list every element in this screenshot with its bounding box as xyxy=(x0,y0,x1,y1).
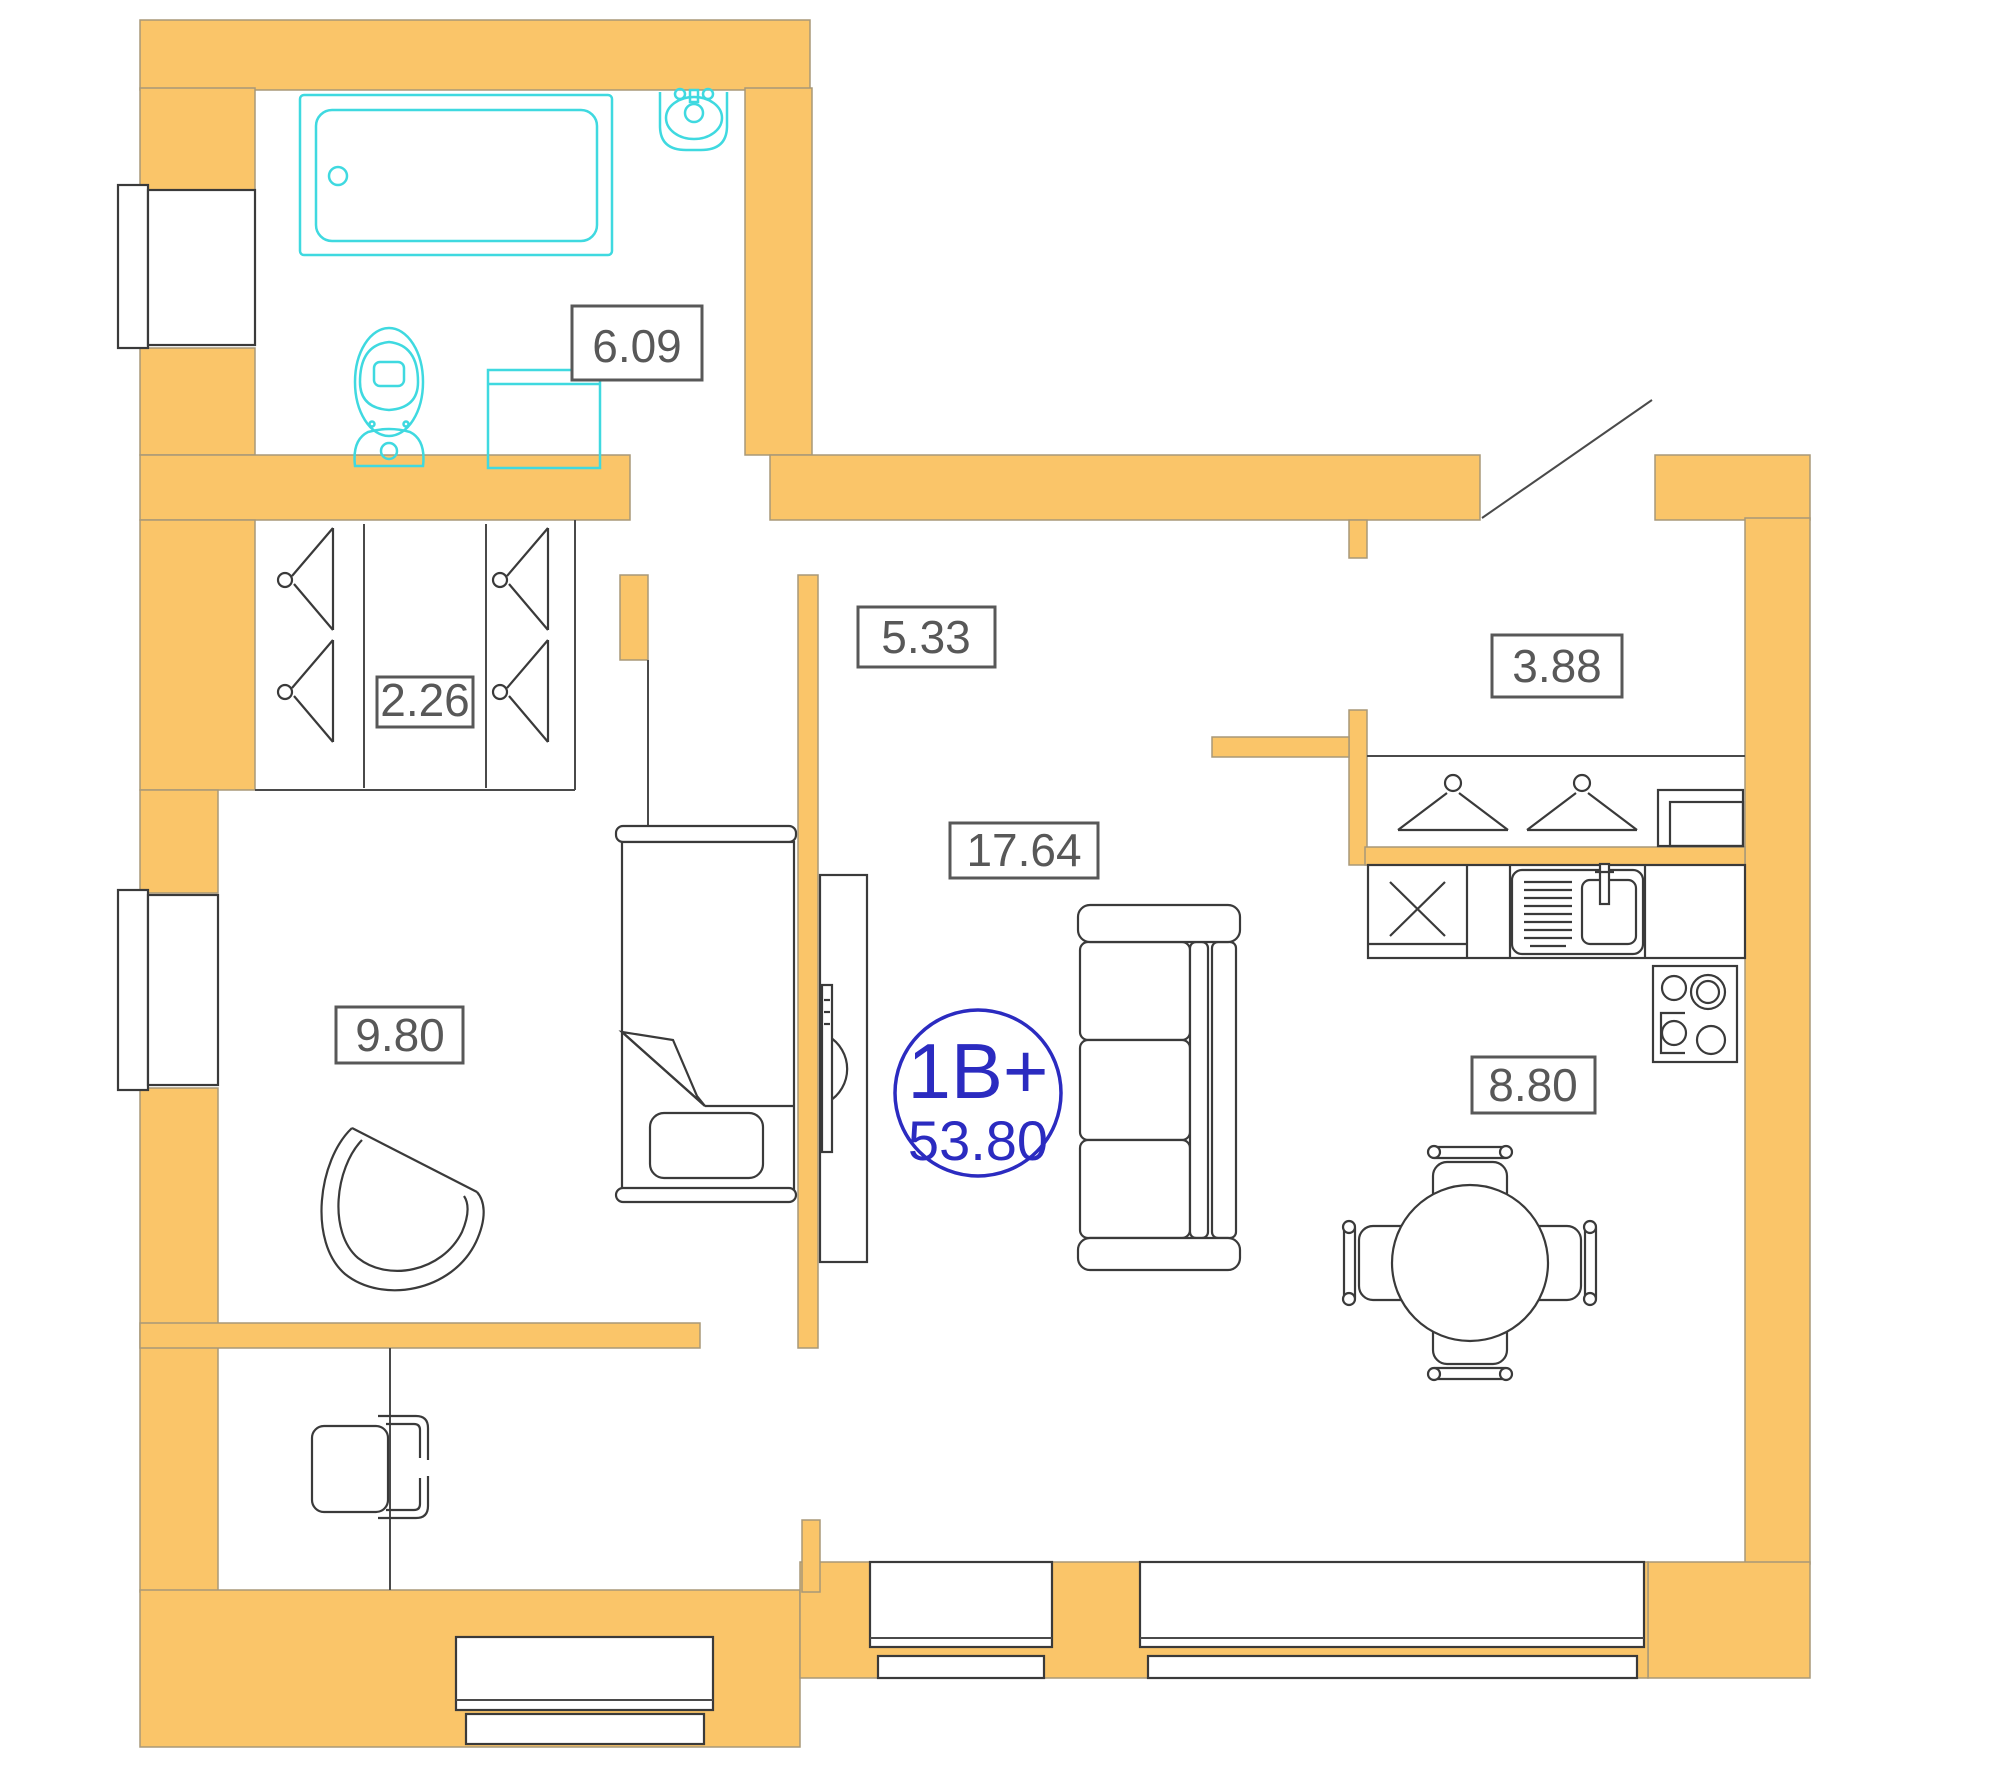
svg-text:3.88: 3.88 xyxy=(1512,640,1602,692)
svg-text:2.26: 2.26 xyxy=(380,674,470,726)
kitchen-sink-icon xyxy=(1512,864,1643,954)
floor-plan-canvas: 6.09 2.26 5.33 3.88 9.80 17.64 8.80 1B+ … xyxy=(0,0,2000,1767)
desk-chair-icon xyxy=(312,1416,428,1518)
svg-text:6.09: 6.09 xyxy=(592,320,682,372)
floor-plan: 6.09 2.26 5.33 3.88 9.80 17.64 8.80 1B+ … xyxy=(0,0,2000,1767)
window-icon xyxy=(118,890,218,1090)
svg-text:17.64: 17.64 xyxy=(966,824,1081,876)
living-room-area-label: 17.64 xyxy=(950,823,1098,878)
svg-text:8.80: 8.80 xyxy=(1488,1059,1578,1111)
washing-machine-icon xyxy=(488,370,600,468)
stove-icon xyxy=(1653,966,1737,1062)
window-icon xyxy=(118,185,255,348)
wardrobe-area-label: 2.26 xyxy=(377,674,473,727)
sofa-icon xyxy=(1078,905,1240,1270)
svg-text:5.33: 5.33 xyxy=(881,611,971,663)
bathroom-area-label: 6.09 xyxy=(572,306,702,380)
window-icon xyxy=(456,1637,713,1744)
dining-table-icon xyxy=(1392,1185,1548,1341)
hallway-area-label: 5.33 xyxy=(858,607,995,667)
window-icon xyxy=(870,1562,1052,1678)
entrance-door-icon xyxy=(1482,400,1652,518)
bedroom-area-label: 9.80 xyxy=(336,1007,463,1063)
bed-icon xyxy=(616,826,796,1202)
window-icon xyxy=(1140,1562,1644,1678)
entry-area-label: 3.88 xyxy=(1492,635,1622,697)
toilet-icon xyxy=(355,328,424,466)
tv-icon xyxy=(820,875,867,1262)
svg-text:53.80: 53.80 xyxy=(908,1109,1048,1172)
svg-text:9.80: 9.80 xyxy=(355,1009,445,1061)
bathtub-icon xyxy=(300,95,612,255)
armchair-icon xyxy=(321,1128,483,1290)
kitchen-area-label: 8.80 xyxy=(1472,1057,1595,1113)
shoe-cabinet-icon xyxy=(1658,790,1743,846)
wash-basin-icon xyxy=(660,89,727,150)
svg-text:1B+: 1B+ xyxy=(908,1027,1049,1115)
hanger-icon xyxy=(1398,775,1637,830)
unit-badge: 1B+ 53.80 xyxy=(895,1010,1061,1176)
